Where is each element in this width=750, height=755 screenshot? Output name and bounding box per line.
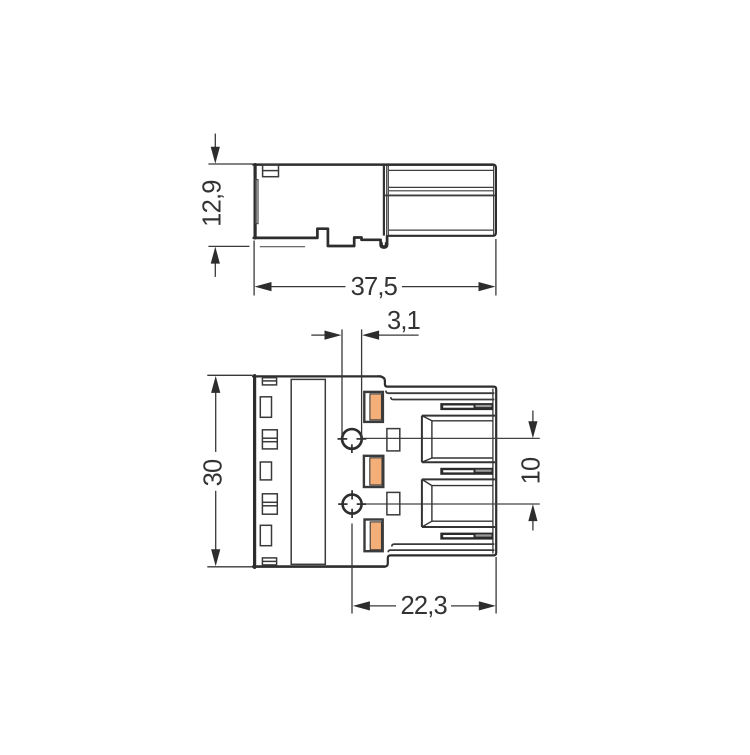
svg-text:37,5: 37,5 — [351, 273, 398, 301]
svg-text:10: 10 — [518, 457, 546, 484]
svg-text:12,9: 12,9 — [199, 180, 227, 226]
svg-text:30: 30 — [199, 459, 227, 486]
svg-text:3,1: 3,1 — [387, 307, 420, 335]
svg-text:22,3: 22,3 — [400, 592, 447, 620]
